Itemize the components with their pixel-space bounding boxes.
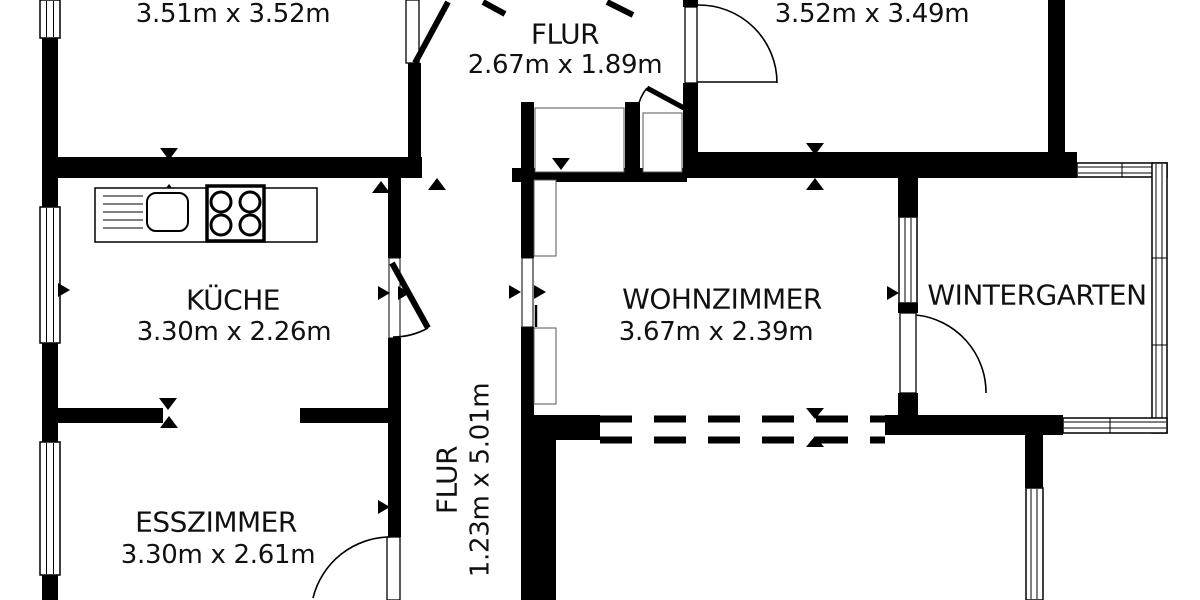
door-leaf	[685, 7, 697, 83]
room-dims-top-left: 3.51m x 3.52m	[136, 0, 330, 29]
closets	[534, 108, 682, 404]
room-label-flur-corridor: FLUR 1.23m x 5.01m	[429, 383, 497, 577]
corridor-name: FLUR	[429, 383, 464, 577]
door-leaf	[900, 313, 916, 393]
floor-plan: 3.51m x 3.52m FLUR 2.67m x 1.89m 3.52m x…	[0, 0, 1200, 600]
window-icon	[1026, 488, 1043, 600]
corridor-dims: 1.23m x 5.01m	[464, 383, 497, 577]
stove-icon	[207, 186, 264, 241]
room-label-flur-top: FLUR	[531, 18, 599, 51]
room-label-wintergarten: WINTERGARTEN	[927, 279, 1146, 312]
room-dims-flur-top: 2.67m x 1.89m	[468, 50, 662, 80]
window-icon	[40, 207, 60, 343]
window-icon	[40, 0, 60, 38]
room-label-kueche: KÜCHE	[186, 284, 280, 317]
room-dims-esszimmer: 3.30m x 2.61m	[121, 540, 315, 570]
window-icon	[40, 442, 60, 575]
door-frame	[522, 258, 533, 327]
window-icon	[899, 217, 917, 303]
glazing-right	[1152, 163, 1167, 433]
glazing-bottom	[1063, 418, 1167, 433]
room-label-esszimmer: ESSZIMMER	[135, 506, 297, 539]
door-leaf	[387, 537, 400, 600]
dashed-opening	[600, 419, 885, 440]
room-dims-kueche: 3.30m x 2.26m	[137, 317, 331, 347]
room-label-wohnzimmer: WOHNZIMMER	[622, 283, 822, 316]
room-dims-wohnzimmer: 3.67m x 2.39m	[619, 317, 813, 347]
room-dims-top-right: 3.52m x 3.49m	[775, 0, 969, 29]
